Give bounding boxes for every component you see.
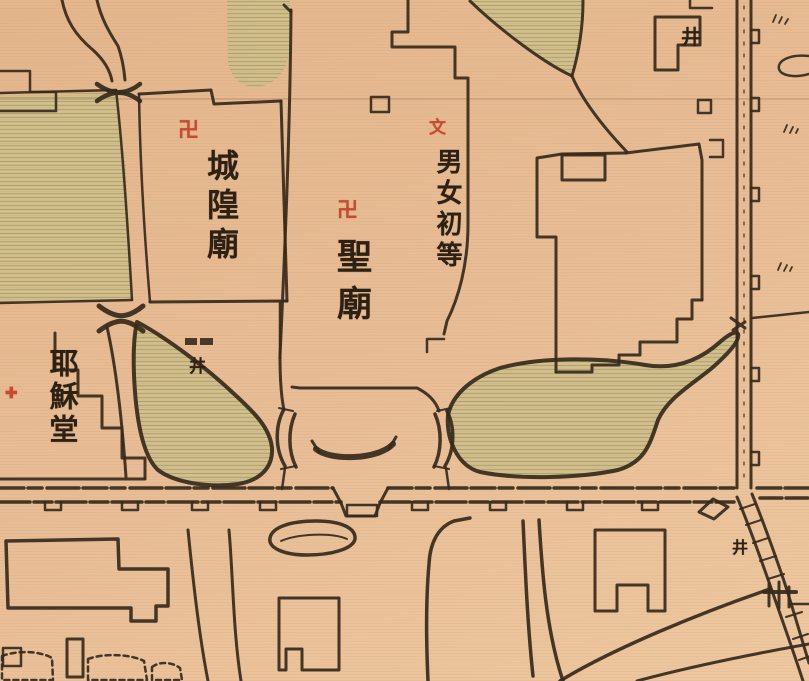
label-elementary-school: 男女初等 [429,148,466,272]
label-jesus-church: 耶穌堂 [41,348,83,447]
label-well-courtyard: 井 [189,352,206,377]
label-well-top-right: 井 [681,21,701,50]
ink-lines [0,0,809,681]
map-linework [0,0,809,681]
temple-swastika-icon: 卍 [337,194,358,224]
label-city-god-temple: 城隍廟 [198,149,244,266]
label-sacred-temple: 聖廟 [326,238,377,332]
church-cross-icon: ✚ [5,384,18,402]
temple-swastika-icon: 卍 [178,114,199,144]
label-well-bottom-right: 井 [732,534,748,558]
historical-map: 卍 卍 文 ✚ 城隍廟 男女初等 聖廟 耶穌堂 井 井 井 [0,0,809,681]
school-mark-icon: 文 [429,113,446,138]
